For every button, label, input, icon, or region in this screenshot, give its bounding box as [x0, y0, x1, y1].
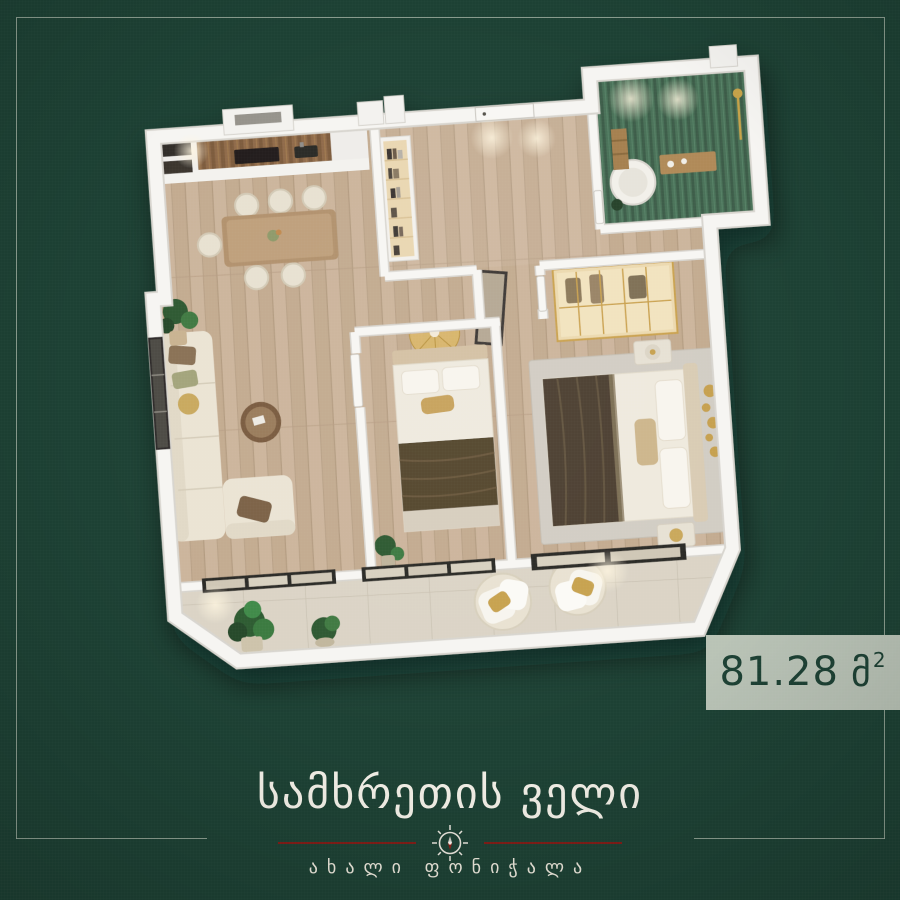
bed-double — [542, 363, 708, 533]
poster: { "poster": { "background_color": "#1d41… — [0, 0, 900, 900]
bathroom-door — [594, 190, 604, 223]
area-badge: 81.28 მ 2 — [706, 635, 900, 710]
floor-plan-svg — [30, 10, 850, 730]
wardrobe — [553, 261, 678, 341]
area-superscript: 2 — [873, 648, 887, 672]
area-value: 81.28 — [719, 635, 839, 710]
area-unit: მ — [851, 651, 872, 695]
project-subtitle: ახალი ფონიჭალა — [0, 857, 900, 878]
bed-single — [392, 344, 499, 532]
divider-line-right — [484, 842, 622, 844]
project-title: სამხრეთის ველი — [0, 768, 900, 819]
kitchen-sink — [294, 145, 318, 158]
floor-plan-render — [30, 10, 850, 730]
cooktop — [234, 147, 280, 165]
divider-line-left — [278, 842, 416, 844]
ladder-shelf — [611, 128, 629, 170]
